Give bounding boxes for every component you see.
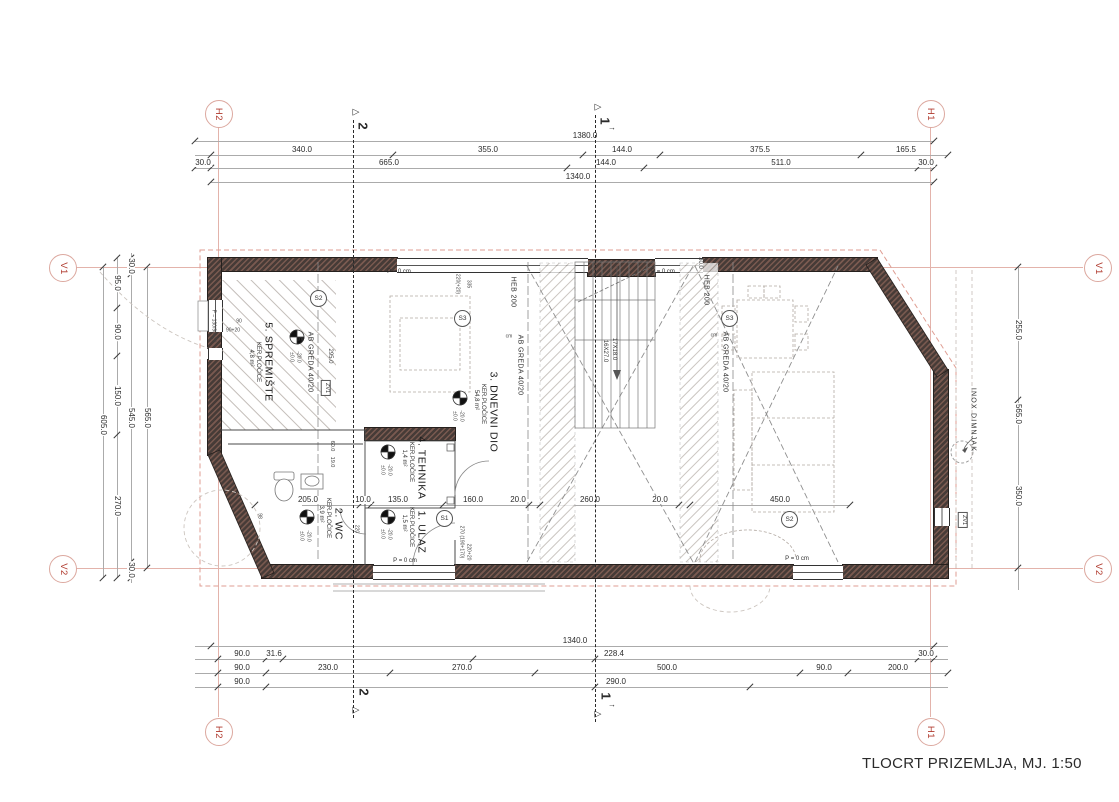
wall-bottom-b — [455, 565, 793, 578]
dim-label: 200.0 — [887, 664, 909, 672]
beams-label: AB GREDA 40/20 — [517, 335, 524, 396]
rooms-label: 3. DNEVNI DIO — [488, 372, 499, 453]
beams-label: AB GREDA 40/20 — [307, 332, 314, 393]
stat-marker-s2: S2 — [310, 290, 327, 307]
dim-label: 150.0 — [113, 385, 121, 407]
dim-label: 545.0 — [127, 407, 135, 429]
tiny-label: P = 130/90+20 — [211, 310, 216, 343]
wall-top-right — [703, 258, 877, 271]
zv-tag: ZV1 — [958, 512, 968, 528]
dim-label: 90.0 — [233, 650, 251, 658]
dim-tick — [113, 574, 120, 581]
grid-marker-h2: H2 — [205, 718, 233, 746]
dim-label: 20.0 — [651, 496, 669, 504]
dim-label: 355.0 — [477, 146, 499, 154]
dim-label: 230.0 — [317, 664, 339, 672]
dim-label: 340.0 — [291, 146, 313, 154]
room-subs-label: 1,5 m² — [401, 514, 407, 531]
dim-line — [302, 505, 850, 506]
annotations-label: P = 0 cm — [785, 556, 809, 562]
tiny-label: ±0.0 — [299, 531, 304, 541]
room-subs-label: KER.PLOČICE — [255, 342, 261, 382]
stat-marker-s1: S1 — [436, 510, 453, 527]
dim-label: 90.0 — [233, 664, 251, 672]
tiny-label: -20.0 — [387, 528, 392, 539]
dim-label: 260.0 — [579, 496, 601, 504]
tiny-label: 220(+20) — [455, 274, 460, 294]
grid-marker-label: V2 — [58, 563, 69, 576]
section-line-1 — [595, 115, 596, 722]
dim-line — [1018, 267, 1019, 590]
stat-marker-s3: S3 — [721, 310, 738, 327]
dim-label: 565.0 — [143, 407, 151, 429]
tiny-label: cm — [506, 335, 513, 340]
tiny-label: 30.0 — [697, 257, 703, 269]
dim-line — [195, 687, 948, 688]
dim-label: 270.0 — [451, 664, 473, 672]
grid-marker-v2: V2 — [49, 555, 77, 583]
section-line-2 — [353, 120, 354, 718]
annotations-label: P = 0 cm — [387, 269, 411, 275]
dim-label: 30.0 — [127, 561, 135, 579]
dim-label: 95.0 — [113, 274, 121, 292]
tiny-label: 60.0 — [328, 441, 334, 452]
dim-line — [195, 659, 948, 660]
rooms-label: 2. WC — [333, 508, 344, 540]
grid-marker-label: H1 — [926, 107, 937, 120]
window-top-glazing-left — [397, 258, 588, 273]
dim-label: 270.0 — [113, 495, 121, 517]
section-label: 2 — [358, 688, 371, 695]
dim-label: 450.0 — [769, 496, 791, 504]
dim-label: 135.0 — [387, 496, 409, 504]
tiny-label: 335 — [466, 280, 471, 288]
tiny-label: -20.0 — [296, 351, 301, 362]
dim-label: 90.0 — [233, 678, 251, 686]
dim-label: 144.0 — [611, 146, 633, 154]
dim-label: 511.0 — [770, 159, 791, 167]
wall-tehnika-top — [365, 428, 455, 440]
tiny-label: cm — [711, 334, 718, 339]
wall-right — [934, 370, 948, 578]
dim-line — [195, 646, 948, 647]
dim-tick — [930, 137, 937, 144]
wall-left-gap — [208, 348, 223, 360]
floor-plan-canvas: TLOCRT PRIZEMLJA, MJ. 1:50 H2H1V1V1V2V2H… — [0, 0, 1119, 802]
grid-marker-label: V1 — [1093, 262, 1104, 275]
dim-label: 30.0 — [194, 159, 212, 167]
dim-tick — [944, 669, 951, 676]
dim-label: 665.0 — [378, 159, 400, 167]
room-subs-label: 4,8 m² — [248, 349, 254, 366]
grid-marker-v1: V1 — [49, 254, 77, 282]
tiny-label: -20.0 — [387, 464, 392, 475]
room-subs-label: KER.PLOČICE — [408, 442, 414, 482]
beams-label: AB GREDA 40/20 — [722, 332, 729, 393]
wall-top-left — [208, 258, 397, 271]
dim-label: 90.0 — [113, 323, 121, 341]
room-subs-label: 1,4 m² — [401, 449, 407, 466]
wall-stair-top — [588, 260, 655, 276]
rooms-label: 5. SPREMIŠTE — [263, 322, 274, 402]
tiny-label: ±0.0 — [380, 529, 385, 539]
grid-marker-label: H2 — [214, 107, 225, 120]
annotations-label: P = 0 cm — [393, 558, 417, 564]
dim-tick — [944, 151, 951, 158]
dim-line — [211, 182, 934, 183]
vent-right-zv1 — [934, 508, 950, 526]
section-label: 1 — [599, 117, 612, 124]
stair-label: 16X27.0 — [602, 340, 608, 362]
dim-label: 20.0 — [509, 496, 527, 504]
section-arrow-icon: ▷ — [595, 103, 602, 112]
stat-marker-s3: S3 — [454, 310, 471, 327]
grid-marker-v1: V1 — [1084, 254, 1112, 282]
dim-tick — [251, 501, 258, 508]
dim-label: 605.0 — [99, 414, 107, 436]
dim-label: 205.0 — [297, 496, 319, 504]
room-subs-label: KER.PLOČICE — [325, 498, 331, 538]
dim-label: 350.0 — [1014, 485, 1022, 507]
tiny-label: 270 (190+170) — [459, 526, 464, 559]
dim-tick — [930, 178, 937, 185]
beams-label: HEB 200 — [703, 275, 710, 306]
tiny-label: 98 — [257, 513, 262, 519]
plan-vector-overlay — [0, 0, 1119, 802]
room-subs-label: 3,9 m² — [318, 505, 324, 522]
dim-tick — [99, 574, 106, 581]
beams-label: HEB 200 — [510, 277, 517, 308]
tiny-label: ±0.0 — [289, 352, 294, 362]
wall-bottom-a — [262, 565, 373, 578]
rooms-label: 1. ULAZ — [416, 511, 427, 554]
dim-label: 144.0 — [595, 159, 617, 167]
wall-left-a — [208, 258, 221, 300]
dim-label: 255.0 — [1014, 319, 1022, 341]
tiny-label: 220 — [354, 525, 359, 533]
window-bottom-opening — [793, 565, 843, 580]
tiny-label: cm — [297, 338, 304, 343]
tiny-label: 295.0 — [327, 348, 333, 363]
zv-tag: ZV1 — [321, 380, 331, 396]
dim-label: 565.0 — [1014, 403, 1022, 425]
tiny-label: ±0.0 — [380, 465, 385, 475]
stair-label: 17X18.0 — [611, 338, 617, 360]
room-subs-label: 54,8 m² — [473, 390, 479, 410]
tiny-label: 90 — [236, 320, 242, 325]
dim-label: 375.5 — [749, 146, 771, 154]
dim-label: 1340.0 — [562, 637, 588, 645]
tiny-label: 19.0 — [328, 457, 334, 468]
wall-bottom-c — [843, 565, 948, 578]
dim-label: 290.0 — [605, 678, 627, 686]
grid-marker-label: V1 — [58, 262, 69, 275]
tiny-label: -20.0 — [459, 410, 464, 421]
dim-tick — [846, 501, 853, 508]
stat-marker-s2: S2 — [781, 511, 798, 528]
grid-marker-label: H2 — [214, 725, 225, 738]
grid-marker-h2: H2 — [205, 100, 233, 128]
dim-label: 228.4 — [603, 650, 625, 658]
section-label: 1 — [600, 692, 613, 699]
dim-line — [195, 673, 948, 674]
rooms-label: 4. TEHNIKA — [416, 437, 427, 500]
grid-marker-h1: H1 — [917, 100, 945, 128]
annotations-label: P = 0 cm — [651, 269, 675, 275]
dim-label: 30.0 — [917, 159, 935, 167]
annotations-label: → — [608, 701, 616, 709]
dim-label: 31.6 — [265, 650, 283, 658]
dim-label: 90.0 — [815, 664, 833, 672]
grid-marker-v2: V2 — [1084, 555, 1112, 583]
room-subs-label: KER.PLOČICE — [408, 507, 414, 547]
drawing-title: TLOCRT PRIZEMLJA, MJ. 1:50 — [862, 755, 1082, 772]
dim-line — [195, 141, 934, 142]
section-label: 2 — [357, 122, 370, 129]
dim-label: 500.0 — [656, 664, 678, 672]
dim-label: 30.0 — [917, 650, 935, 658]
grid-marker-label: H1 — [926, 725, 937, 738]
dim-line — [195, 155, 948, 156]
dim-label: 160.0 — [462, 496, 484, 504]
dim-label: 165.5 — [895, 146, 917, 154]
annotations-label: → — [608, 124, 616, 132]
grid-marker-label: V2 — [1093, 563, 1104, 576]
tiny-label: 90+20 — [226, 329, 240, 334]
tiny-label: ±0.0 — [452, 411, 457, 421]
section-arrow-icon: ▷ — [353, 108, 360, 117]
grid-marker-h1: H1 — [917, 718, 945, 746]
dim-label: 10.0 — [354, 496, 372, 504]
entry-door-opening — [373, 565, 455, 580]
room-subs-label: KER.PLOČICE — [480, 384, 486, 424]
wall-left-c — [208, 360, 221, 455]
dim-label: 1340.0 — [565, 173, 591, 181]
tiny-label: -20.0 — [306, 530, 311, 541]
grid-line — [930, 127, 931, 717]
dim-label: 30.0 — [127, 257, 135, 275]
chimney-label: INOX DIMNJAK — [970, 388, 977, 452]
tiny-label: 220+20 — [466, 544, 471, 561]
